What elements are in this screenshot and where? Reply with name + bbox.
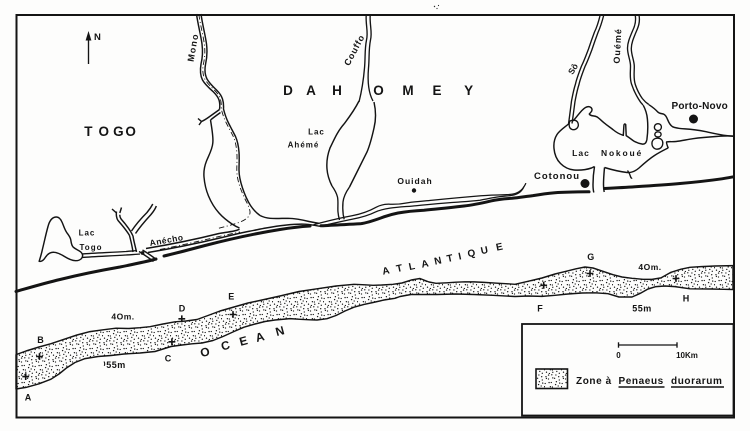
svg-text:Lac: Lac [79,229,96,238]
svg-text:M: M [402,83,413,98]
svg-text:Cotonou: Cotonou [534,171,580,182]
svg-text:G: G [113,124,124,139]
svg-text:O: O [99,124,110,139]
svg-text:C: C [165,354,172,364]
svg-text:Ahémé: Ahémé [288,141,320,150]
svg-text:H: H [332,83,342,98]
svg-text:N: N [94,32,101,43]
svg-text:4Om.: 4Om. [638,262,661,272]
svg-text:G: G [587,252,594,262]
svg-text:Porto-Novo: Porto-Novo [671,101,727,112]
svg-text:D: D [283,83,293,98]
svg-text:F: F [537,304,543,314]
svg-text:A: A [306,83,316,98]
svg-text:Ouémé: Ouémé [612,28,624,64]
svg-text:0: 0 [616,351,621,360]
svg-text:O: O [125,124,136,139]
svg-text:E: E [228,292,234,302]
svg-text:Y: Y [464,83,473,98]
svg-text:Nokoué: Nokoué [601,148,643,158]
svg-text:Lac: Lac [572,148,590,158]
svg-text:Lac: Lac [308,128,325,137]
svg-text:T: T [84,124,93,139]
svg-text:E: E [432,83,441,98]
svg-text:B: B [37,335,44,345]
svg-text:4Om.: 4Om. [111,312,134,322]
svg-text:55m: 55m [632,304,652,314]
svg-text:H: H [683,294,690,304]
svg-text:duorarum: duorarum [671,376,722,387]
svg-text:10Km: 10Km [676,351,698,360]
svg-text:Zone à: Zone à [576,376,612,387]
svg-text:Ouidah: Ouidah [397,176,432,186]
svg-text:Togo: Togo [80,243,103,252]
svg-text:Penaeus: Penaeus [619,376,664,387]
svg-text:D: D [179,304,186,314]
svg-text:O: O [373,83,384,98]
svg-text:55m: 55m [106,360,126,370]
svg-text:A: A [25,393,32,403]
